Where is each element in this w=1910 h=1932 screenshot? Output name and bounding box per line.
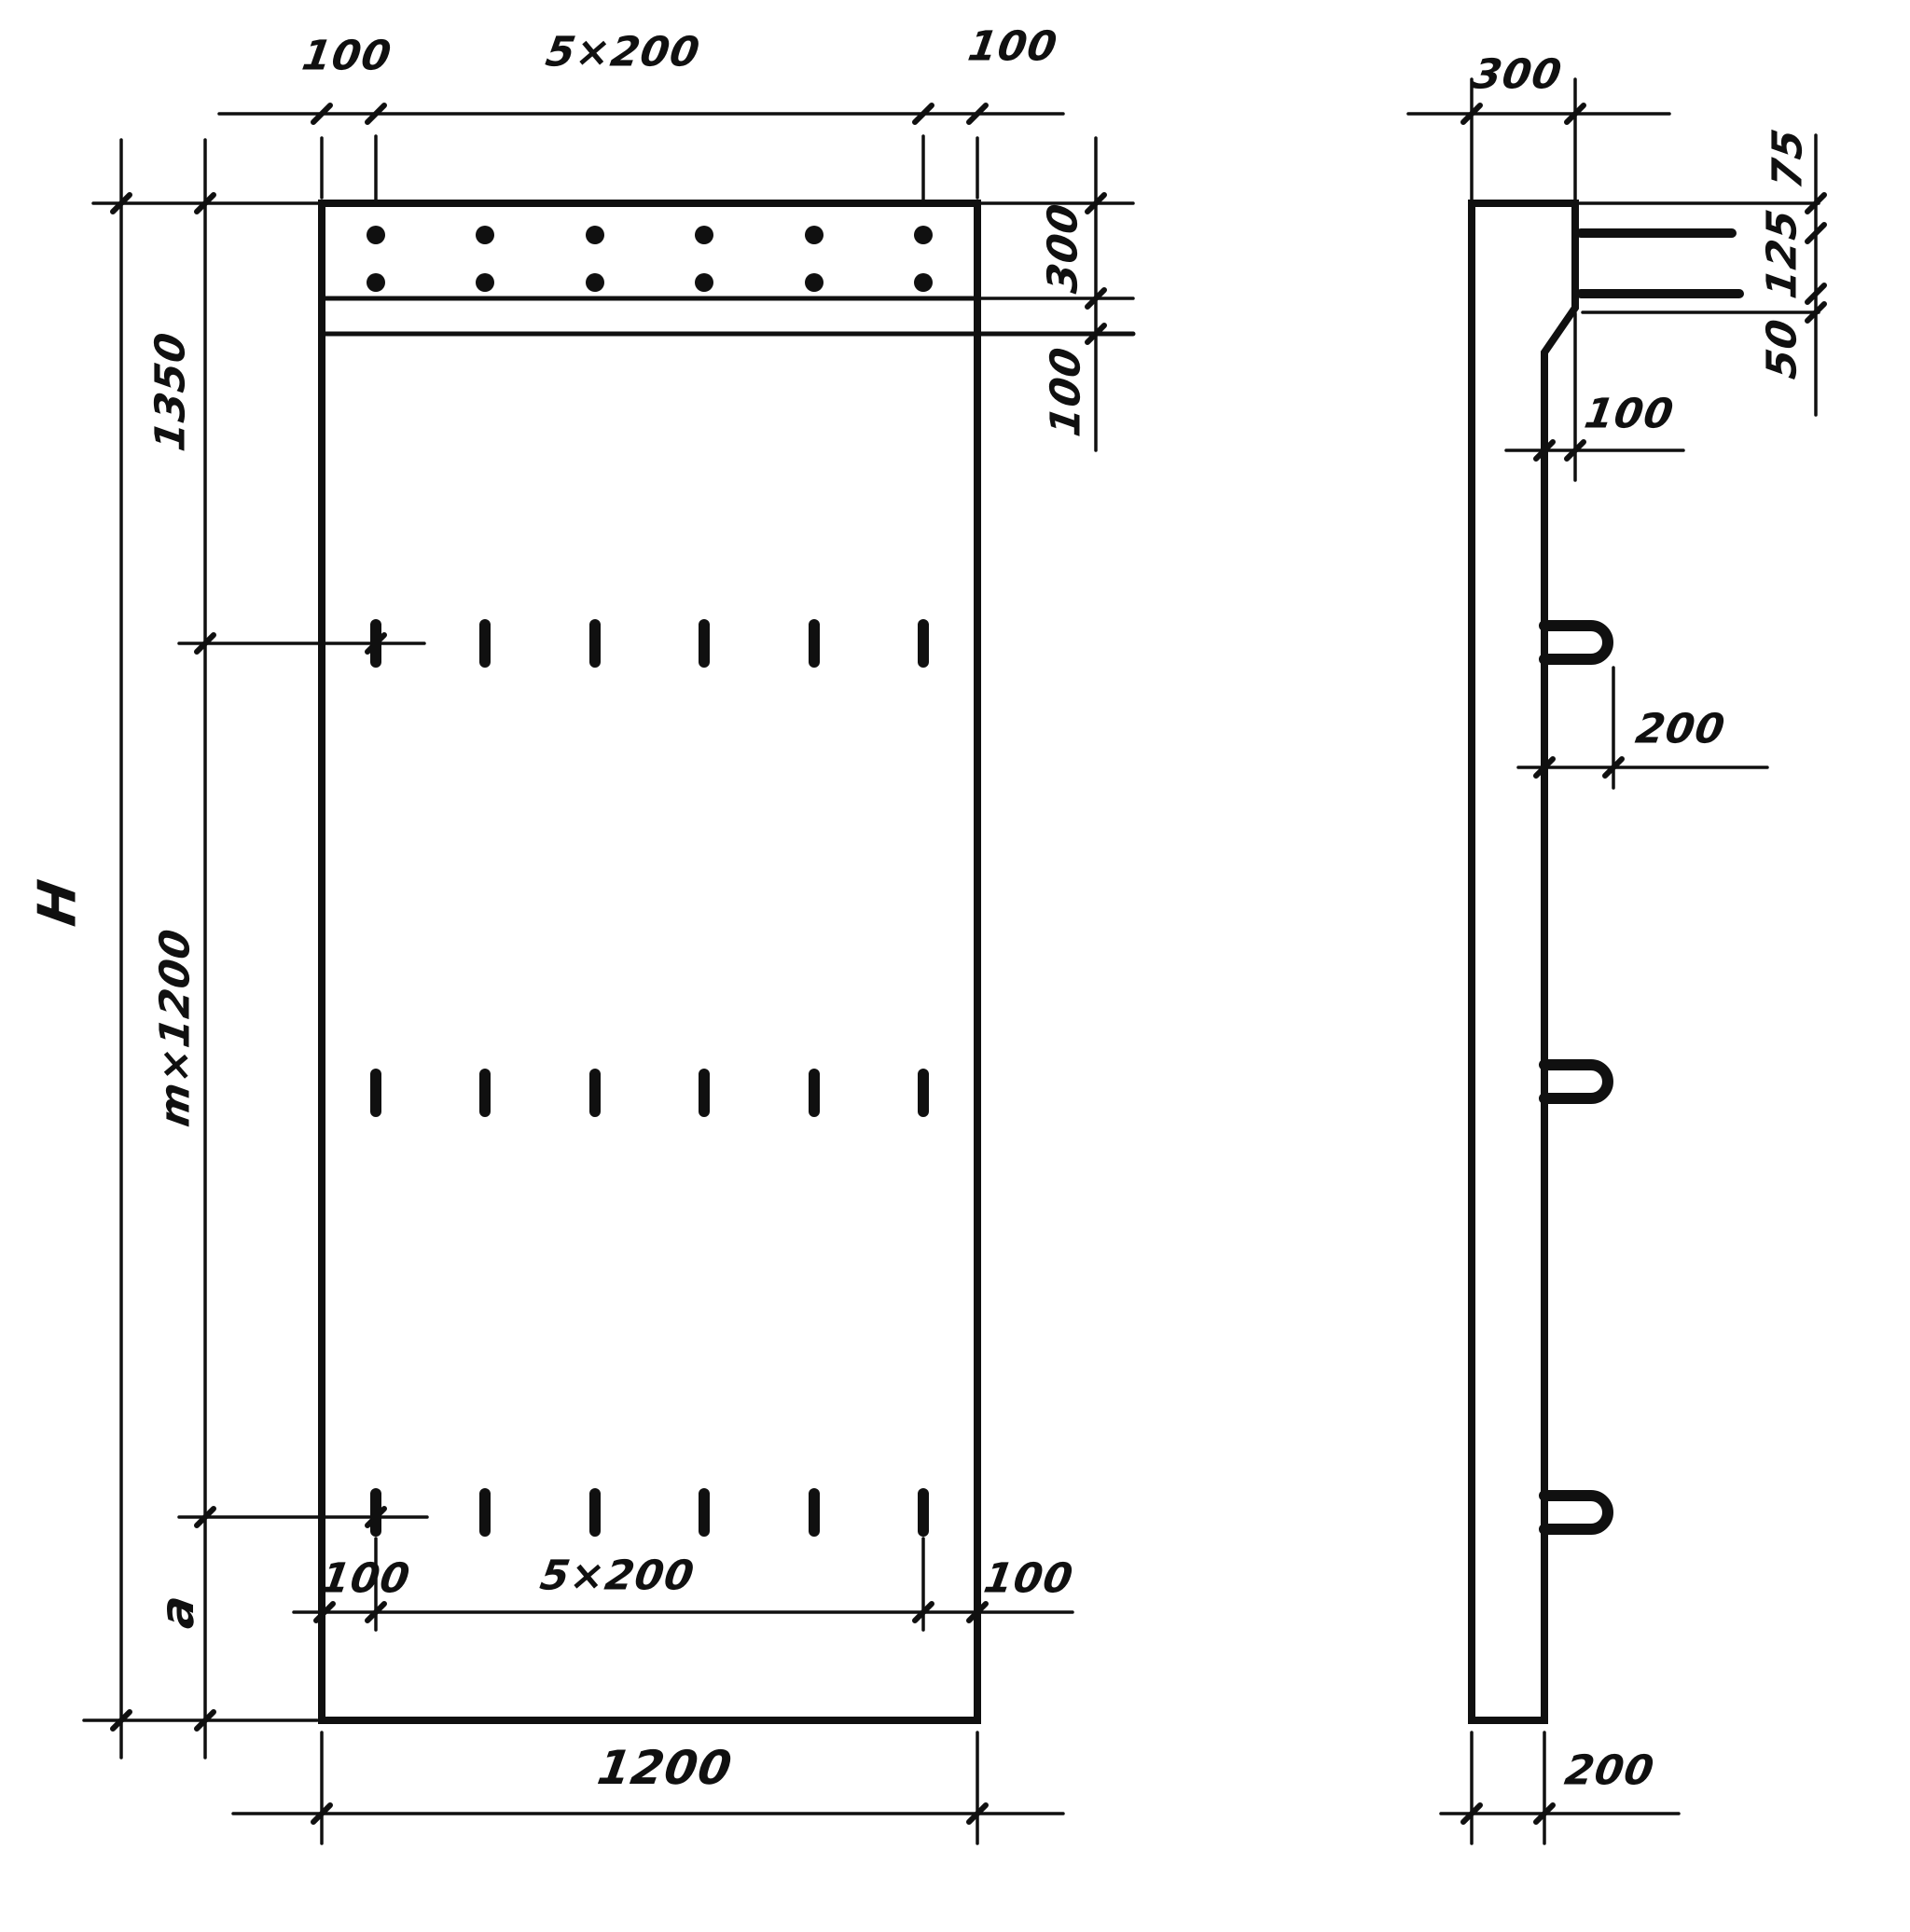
drawing-canvas <box>0 0 1910 1932</box>
dim-loop-length: 200 <box>1633 706 1729 753</box>
dim-top-right-margin: 100 <box>965 23 1061 71</box>
dim-top-left-margin: 100 <box>299 33 395 80</box>
dim-bottom-left-margin: 100 <box>318 1555 414 1603</box>
dim-prong-offset-top: 75 <box>1765 125 1812 191</box>
prong-bars <box>1576 228 1744 298</box>
dim-bottom-right-margin: 100 <box>981 1555 1077 1603</box>
dim-top-to-first-row: 1350 <box>147 329 195 455</box>
band-lines <box>322 298 1133 334</box>
anchor-dots <box>367 226 933 292</box>
panel-outline <box>322 203 977 1720</box>
dim-rows-span: m×1200 <box>152 925 200 1129</box>
dim-top-spacing: 5×200 <box>543 29 703 76</box>
prong-slots <box>370 619 929 1537</box>
dim-band-height: 300 <box>1040 200 1087 297</box>
dim-prong-offset-bottom: 50 <box>1759 315 1806 381</box>
dim-bottom-spacing: 5×200 <box>537 1552 698 1600</box>
dim-band-gap: 100 <box>1043 344 1090 440</box>
drawing-sheet: 100 5×200 100 300 100 H 1350 m×1200 a 10… <box>0 0 1910 1932</box>
dim-side-top-thickness: 300 <box>1470 51 1566 99</box>
dim-prong-spacing: 125 <box>1759 206 1806 302</box>
dim-console-offset: 100 <box>1582 391 1678 438</box>
dim-bottom-thickness: 200 <box>1562 1747 1658 1795</box>
dim-overall-height: H <box>28 876 89 930</box>
dim-overall-width: 1200 <box>594 1741 736 1795</box>
